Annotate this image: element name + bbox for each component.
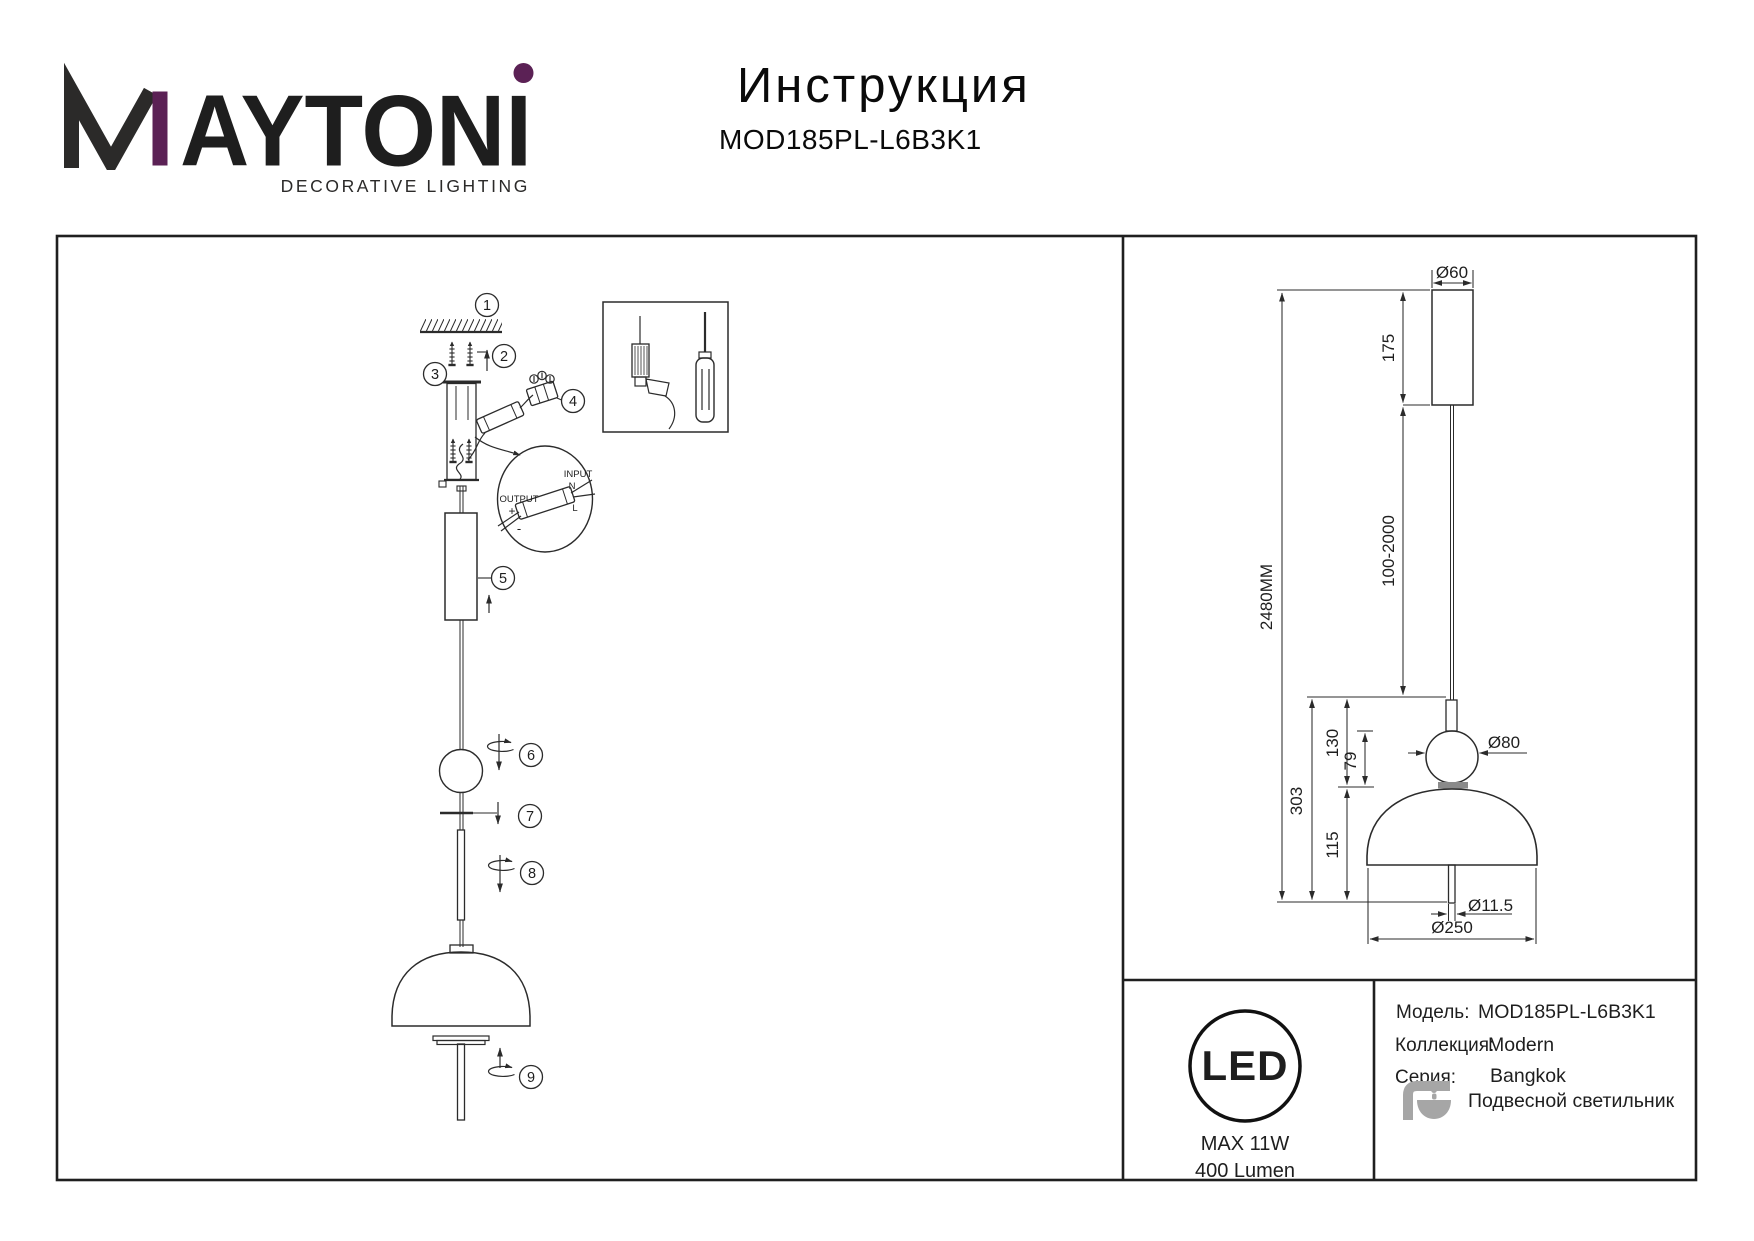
stem-rod bbox=[458, 830, 465, 920]
step-6: 6 bbox=[520, 744, 543, 767]
step-2: 2 bbox=[493, 345, 516, 368]
output-label: OUTPUT bbox=[499, 494, 538, 505]
input-n: N bbox=[569, 481, 576, 492]
extension-lines bbox=[1277, 270, 1536, 944]
dim-fixture-height: 303 bbox=[1287, 787, 1306, 815]
output-plus: + bbox=[508, 504, 515, 518]
decor-sphere bbox=[440, 750, 483, 793]
led-badge: LED MAX 11W 400 Lumen bbox=[1190, 1011, 1300, 1182]
dim-sphere-height: 79 bbox=[1341, 752, 1360, 771]
svg-text:8: 8 bbox=[528, 866, 536, 882]
dim-stem bbox=[1449, 865, 1456, 903]
info-label-collection: Коллекция: bbox=[1395, 1035, 1494, 1056]
svg-text:3: 3 bbox=[431, 367, 439, 383]
ceiling-hatch bbox=[420, 319, 502, 332]
svg-text:5: 5 bbox=[499, 571, 507, 587]
dimension-lines bbox=[1282, 283, 1534, 939]
rotate-arrow-icon bbox=[489, 860, 515, 870]
svg-text:2: 2 bbox=[500, 349, 508, 365]
info-value-type: Подвесной светильник bbox=[1468, 1090, 1675, 1112]
info-value-model: MOD185PL-L6B3K1 bbox=[1478, 1001, 1656, 1023]
dim-canopy-diameter: Ø60 bbox=[1436, 263, 1468, 282]
drill-icon bbox=[632, 316, 675, 429]
product-info: Модель: MOD185PL-L6B3K1 Коллекция: Moder… bbox=[1395, 1001, 1675, 1120]
suspension-wire bbox=[460, 486, 463, 947]
dim-canopy-height: 175 bbox=[1379, 334, 1398, 362]
led-driver bbox=[476, 401, 524, 433]
canopy-cylinder bbox=[445, 513, 477, 620]
step-9: 9 bbox=[520, 1066, 543, 1089]
step-7: 7 bbox=[519, 805, 542, 828]
dome-shade bbox=[392, 952, 530, 1026]
info-label-model: Модель: bbox=[1396, 1002, 1469, 1023]
dim-shade-height: 115 bbox=[1323, 831, 1342, 858]
badge-max-power: MAX 11W bbox=[1201, 1133, 1290, 1155]
svg-text:7: 7 bbox=[526, 809, 534, 825]
dim-connector bbox=[1446, 700, 1457, 731]
dim-canopy bbox=[1432, 290, 1473, 405]
input-label: INPUT bbox=[564, 469, 593, 480]
info-value-series: Bangkok bbox=[1490, 1065, 1566, 1087]
dimension-drawing: 2480MM Ø60 175 100-2000 303 130 79 115 Ø… bbox=[1257, 263, 1537, 944]
step-1: 1 bbox=[476, 294, 499, 317]
step-8: 8 bbox=[521, 862, 544, 885]
info-value-collection: Modern bbox=[1488, 1034, 1554, 1056]
screwdriver-icon bbox=[696, 312, 714, 422]
screw-icon bbox=[466, 342, 473, 366]
dimension-labels: 2480MM Ø60 175 100-2000 303 130 79 115 Ø… bbox=[1257, 263, 1520, 937]
wiring-detail: OUTPUT + - INPUT N L bbox=[498, 446, 596, 552]
wire bbox=[520, 395, 533, 408]
input-l: L bbox=[572, 503, 577, 514]
dim-upper-section: 130 bbox=[1323, 729, 1342, 757]
terminal-block bbox=[526, 371, 561, 406]
tools-box bbox=[603, 302, 728, 432]
instruction-sheet: AYTONI DECORATIVE LIGHTING Инструкция MO… bbox=[0, 0, 1754, 1241]
rotate-arrow-icon bbox=[489, 1066, 515, 1076]
detail-leader bbox=[475, 437, 520, 455]
assembly-diagram: OUTPUT + - INPUT N L bbox=[392, 294, 728, 1121]
output-minus: - bbox=[517, 521, 521, 536]
led-badge-text: LED bbox=[1202, 1042, 1289, 1089]
dim-dome bbox=[1367, 789, 1537, 865]
svg-text:1: 1 bbox=[483, 298, 491, 314]
rotate-arrow-icon bbox=[488, 741, 514, 751]
lower-stem bbox=[458, 1044, 465, 1120]
svg-text:9: 9 bbox=[527, 1070, 535, 1086]
dim-sphere-diameter: Ø80 bbox=[1488, 733, 1520, 752]
step-3: 3 bbox=[424, 363, 447, 386]
screw-icon bbox=[448, 342, 455, 366]
dim-overall-height: 2480MM bbox=[1257, 564, 1276, 630]
dim-sphere bbox=[1426, 731, 1478, 783]
svg-text:6: 6 bbox=[527, 748, 535, 764]
diffuser-disk bbox=[433, 1036, 489, 1041]
dim-cable-length: 100-2000 bbox=[1379, 515, 1398, 587]
dim-stem-diameter: Ø11.5 bbox=[1468, 896, 1513, 915]
step-5: 5 bbox=[492, 567, 515, 590]
badge-luminous-flux: 400 Lumen bbox=[1195, 1160, 1295, 1182]
main-drawing: OUTPUT + - INPUT N L bbox=[0, 0, 1754, 1241]
step-4: 4 bbox=[562, 390, 585, 413]
dim-shade-diameter: Ø250 bbox=[1431, 918, 1473, 937]
mounting-bracket bbox=[439, 382, 481, 491]
dim-shade-cap bbox=[1438, 782, 1468, 789]
svg-text:4: 4 bbox=[569, 394, 577, 410]
pendant-lamp-icon bbox=[1408, 1086, 1451, 1120]
